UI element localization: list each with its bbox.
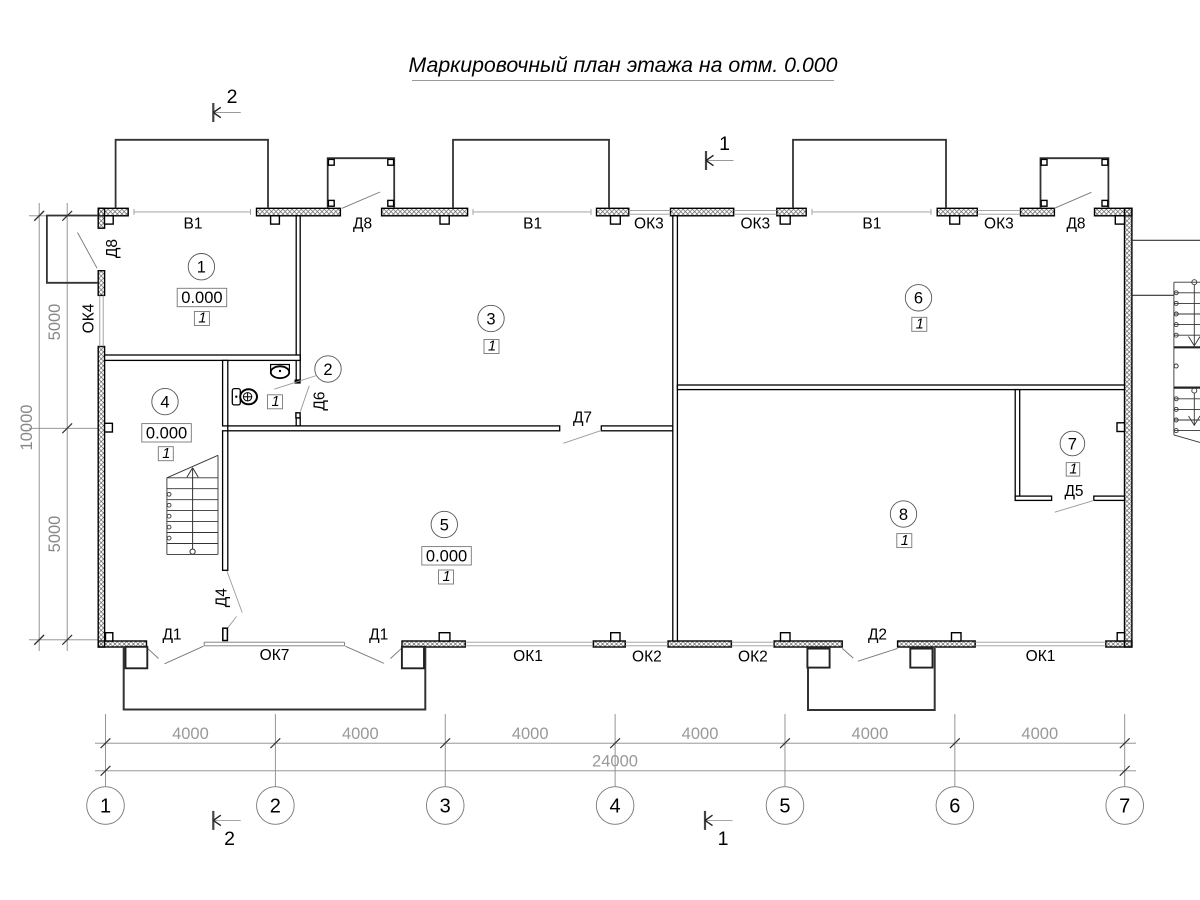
svg-text:ОК3: ОК3 — [634, 216, 664, 233]
svg-text:Д4: Д4 — [214, 588, 231, 607]
svg-text:7: 7 — [1068, 435, 1077, 453]
svg-text:5: 5 — [440, 516, 449, 534]
svg-text:1: 1 — [198, 311, 206, 327]
svg-text:ОК1: ОК1 — [513, 648, 543, 665]
svg-text:0.000: 0.000 — [426, 547, 467, 565]
svg-text:4000: 4000 — [852, 725, 889, 743]
svg-text:Д7: Д7 — [573, 410, 592, 427]
svg-text:4000: 4000 — [172, 725, 209, 743]
svg-text:1: 1 — [100, 796, 111, 818]
svg-text:4: 4 — [610, 796, 621, 818]
svg-text:Маркировочный план этажа на от: Маркировочный план этажа на отм. 0.000 — [409, 53, 838, 77]
svg-text:1: 1 — [271, 394, 279, 410]
svg-text:ОК3: ОК3 — [740, 216, 770, 233]
svg-text:1: 1 — [901, 533, 909, 549]
svg-text:ОК4: ОК4 — [81, 303, 98, 333]
svg-text:2: 2 — [224, 828, 235, 850]
svg-text:1: 1 — [197, 259, 206, 277]
svg-text:0.000: 0.000 — [181, 289, 222, 307]
svg-text:2: 2 — [227, 86, 238, 108]
svg-text:Д8: Д8 — [1066, 216, 1085, 233]
svg-text:1: 1 — [916, 317, 924, 333]
svg-text:6: 6 — [914, 290, 923, 308]
svg-text:2: 2 — [323, 361, 332, 379]
svg-text:10000: 10000 — [18, 405, 36, 451]
svg-text:Д8: Д8 — [353, 216, 372, 233]
svg-text:ОК2: ОК2 — [738, 649, 768, 666]
svg-text:24000: 24000 — [592, 753, 638, 771]
svg-text:4000: 4000 — [682, 725, 719, 743]
svg-text:6: 6 — [949, 796, 960, 818]
svg-text:4000: 4000 — [1021, 725, 1058, 743]
svg-text:4000: 4000 — [342, 725, 379, 743]
svg-text:1: 1 — [488, 339, 496, 355]
svg-text:1: 1 — [442, 569, 450, 585]
svg-text:1: 1 — [718, 828, 729, 850]
svg-text:7: 7 — [1119, 796, 1130, 818]
svg-text:ОК3: ОК3 — [984, 216, 1014, 233]
svg-text:В1: В1 — [184, 216, 203, 233]
svg-text:5000: 5000 — [46, 304, 64, 341]
svg-text:Д1: Д1 — [162, 626, 181, 643]
svg-text:0.000: 0.000 — [146, 424, 187, 442]
svg-text:8: 8 — [899, 506, 908, 524]
svg-text:ОК1: ОК1 — [1026, 648, 1056, 665]
svg-text:Д1: Д1 — [369, 626, 388, 643]
svg-text:В1: В1 — [523, 216, 542, 233]
svg-text:1: 1 — [1069, 461, 1077, 477]
svg-text:3: 3 — [440, 796, 451, 818]
svg-text:Д2: Д2 — [868, 627, 887, 644]
svg-text:3: 3 — [486, 310, 495, 328]
svg-text:1: 1 — [162, 446, 170, 462]
svg-text:В1: В1 — [862, 216, 881, 233]
svg-text:Д8: Д8 — [104, 239, 121, 258]
svg-text:4: 4 — [160, 393, 169, 411]
svg-text:5000: 5000 — [46, 516, 64, 553]
svg-text:ОК7: ОК7 — [260, 647, 290, 664]
svg-text:Д5: Д5 — [1064, 483, 1083, 500]
svg-text:Д6: Д6 — [312, 391, 329, 410]
svg-text:2: 2 — [270, 796, 281, 818]
svg-text:5: 5 — [779, 796, 790, 818]
svg-text:ОК2: ОК2 — [632, 649, 662, 666]
svg-text:1: 1 — [719, 133, 730, 155]
svg-text:4000: 4000 — [512, 725, 549, 743]
